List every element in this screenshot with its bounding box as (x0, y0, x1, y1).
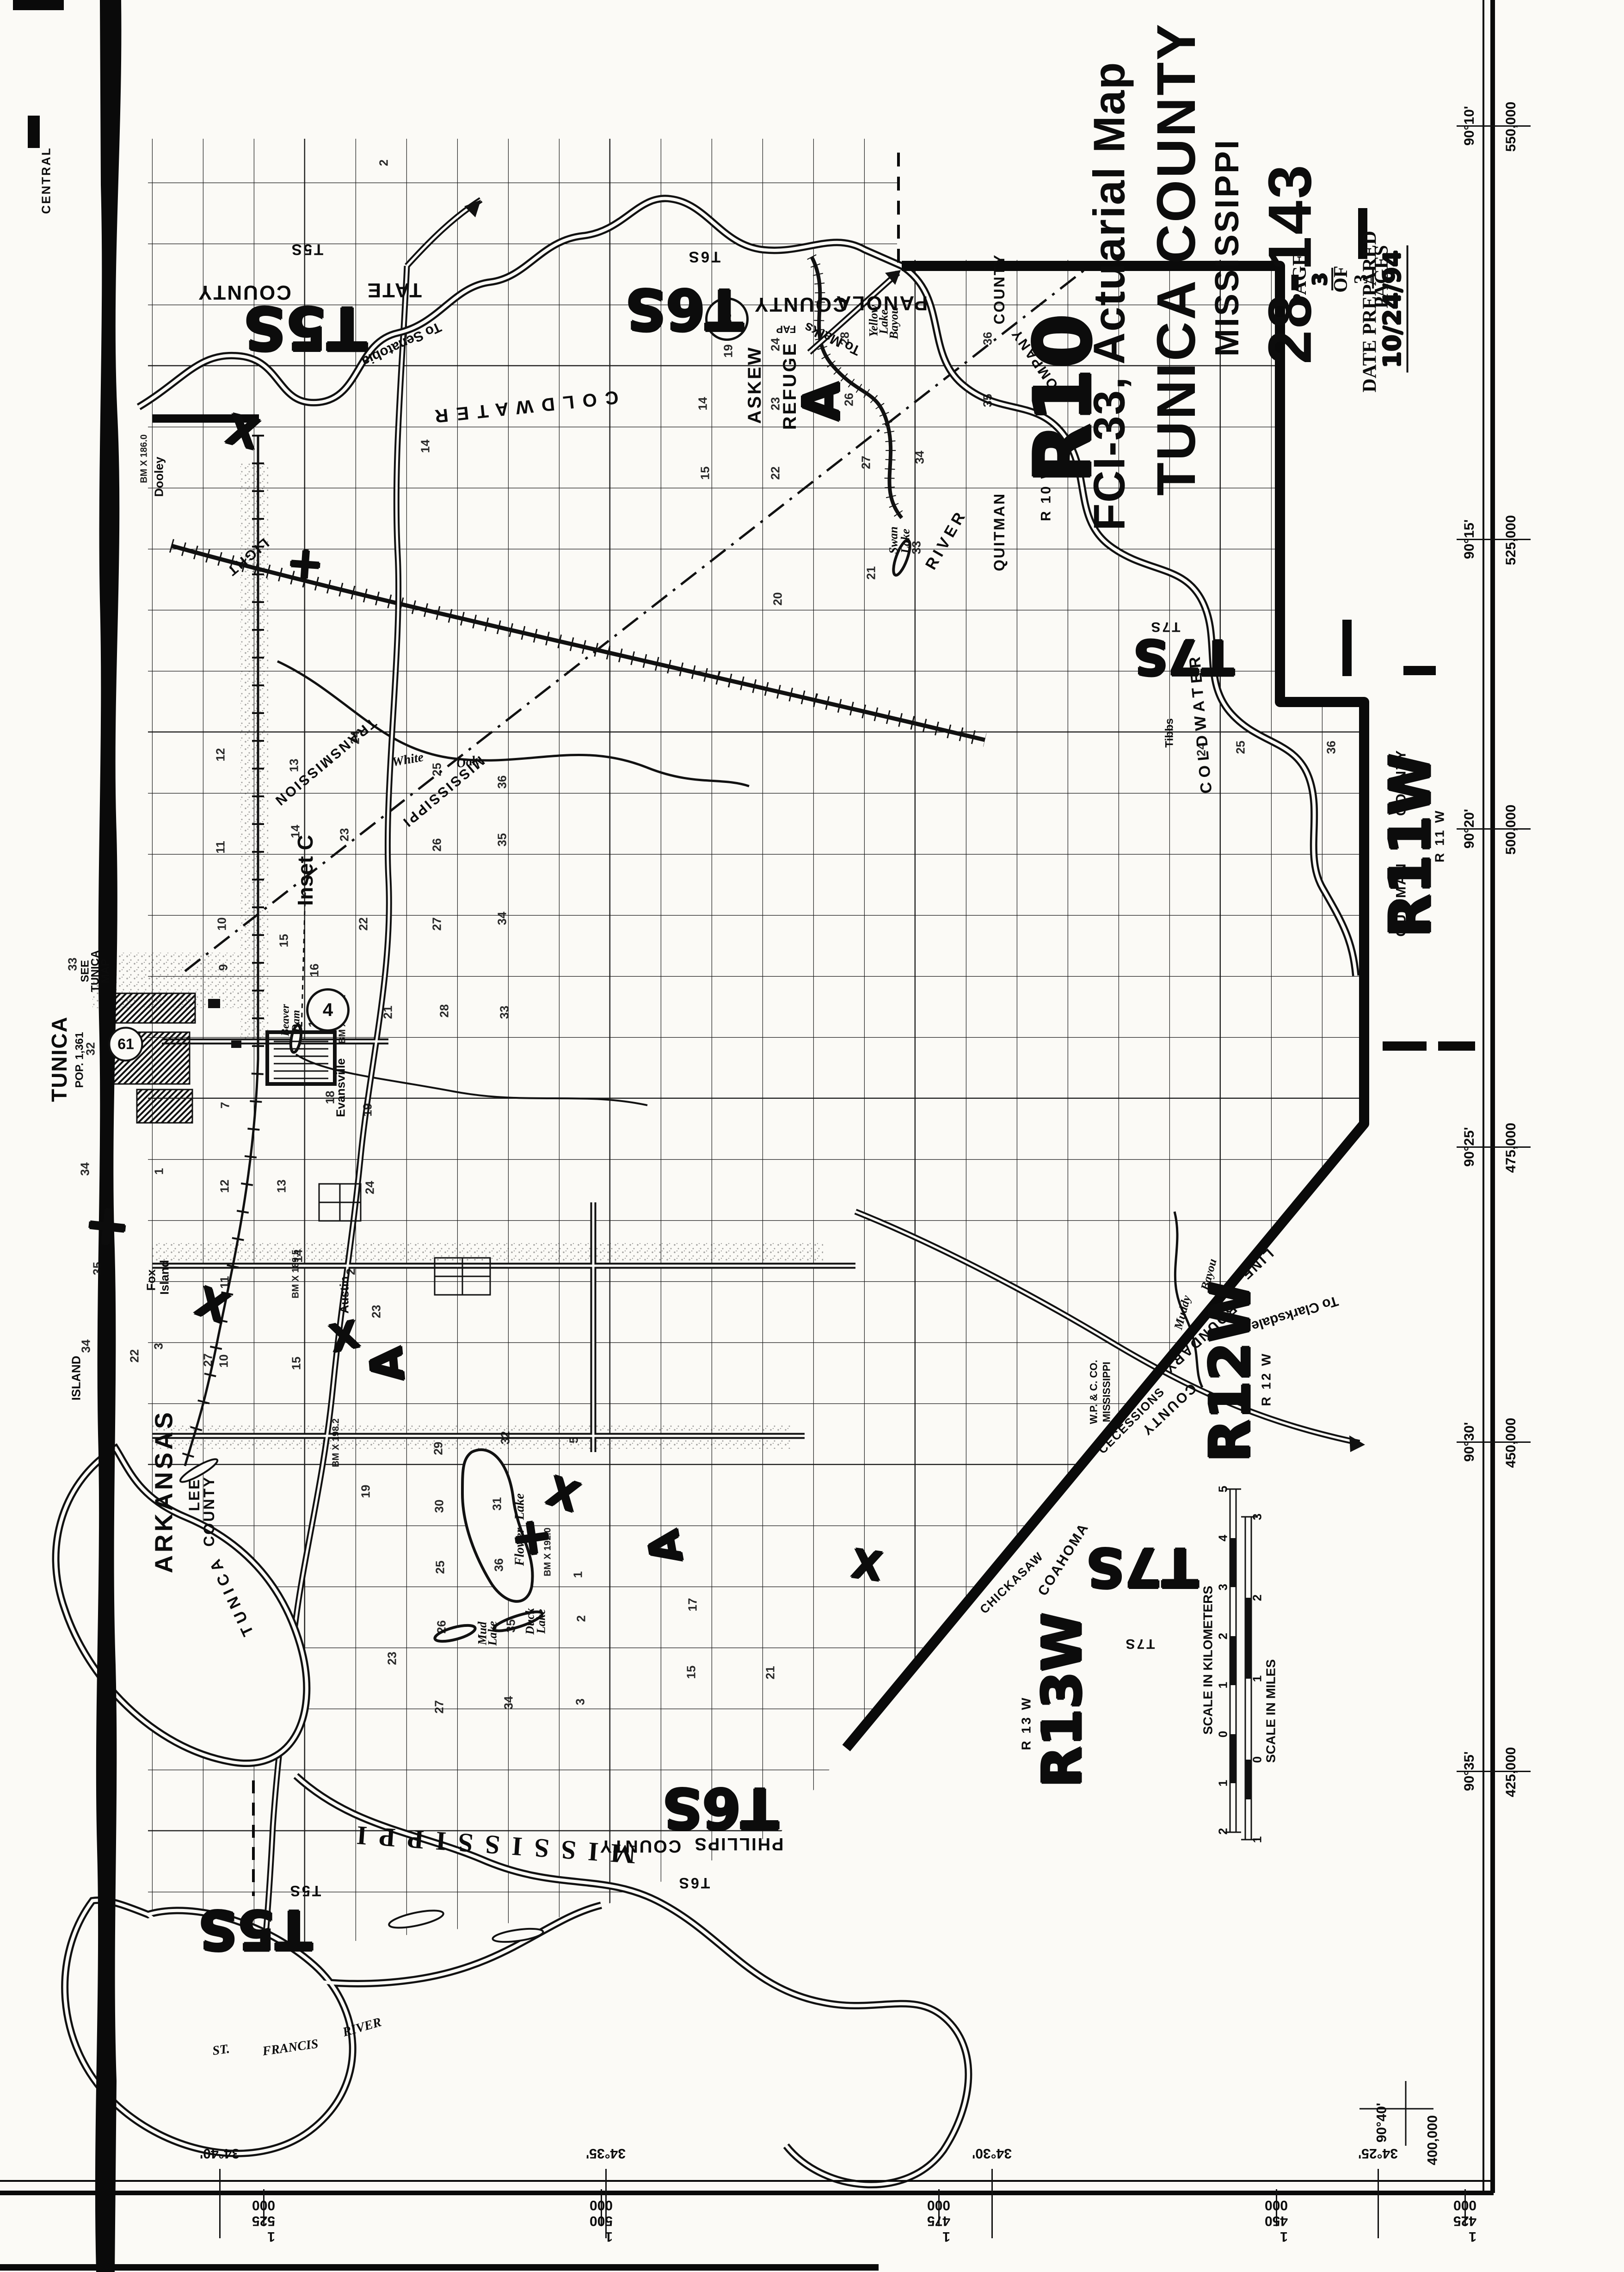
highway-shield-icon: 3 (705, 297, 749, 341)
highway-shield-icon: 61 (108, 1027, 143, 1061)
scale-tick-label: 5 (1216, 1486, 1230, 1492)
scale-tick-label: 4 (1216, 1535, 1230, 1541)
scale-tick-label: 0 (1250, 1756, 1265, 1763)
scale-tick-label: 1 (1250, 1836, 1265, 1843)
highway-shield-icon: 4 (306, 988, 350, 1032)
scale-tick-label: 2 (1216, 1828, 1230, 1835)
scale-tick-label: 3 (1250, 1514, 1265, 1520)
scale-tick-label: 1 (1250, 1675, 1265, 1682)
scale-tick-label: 2 (1250, 1595, 1265, 1601)
map-sheet: FCI-33, Actuarial Map TUNICA COUNTY MISS… (0, 0, 1624, 2272)
map-linework (0, 0, 1624, 2272)
scale-tick-label: 2 (1216, 1633, 1230, 1639)
scale-tick-label: 0 (1216, 1731, 1230, 1737)
scale-tick-label: 1 (1216, 1780, 1230, 1786)
scale-tick-label: 1 (1216, 1682, 1230, 1688)
scale-tick-label: 3 (1216, 1584, 1230, 1590)
